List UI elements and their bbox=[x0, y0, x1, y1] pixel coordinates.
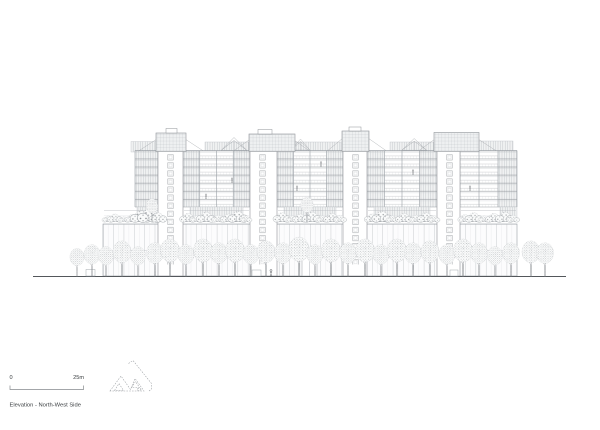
scale-bar-line bbox=[10, 386, 84, 390]
scale-bar: 0 25m bbox=[10, 375, 85, 390]
scale-start-label: 0 bbox=[10, 375, 13, 381]
elevation-sheet: 0 25m Elevation - North-West Side bbox=[0, 0, 600, 425]
key-plan-icon bbox=[110, 361, 152, 392]
drawing-caption: Elevation - North-West Side bbox=[10, 403, 81, 409]
scale-end-label: 25m bbox=[73, 375, 84, 381]
